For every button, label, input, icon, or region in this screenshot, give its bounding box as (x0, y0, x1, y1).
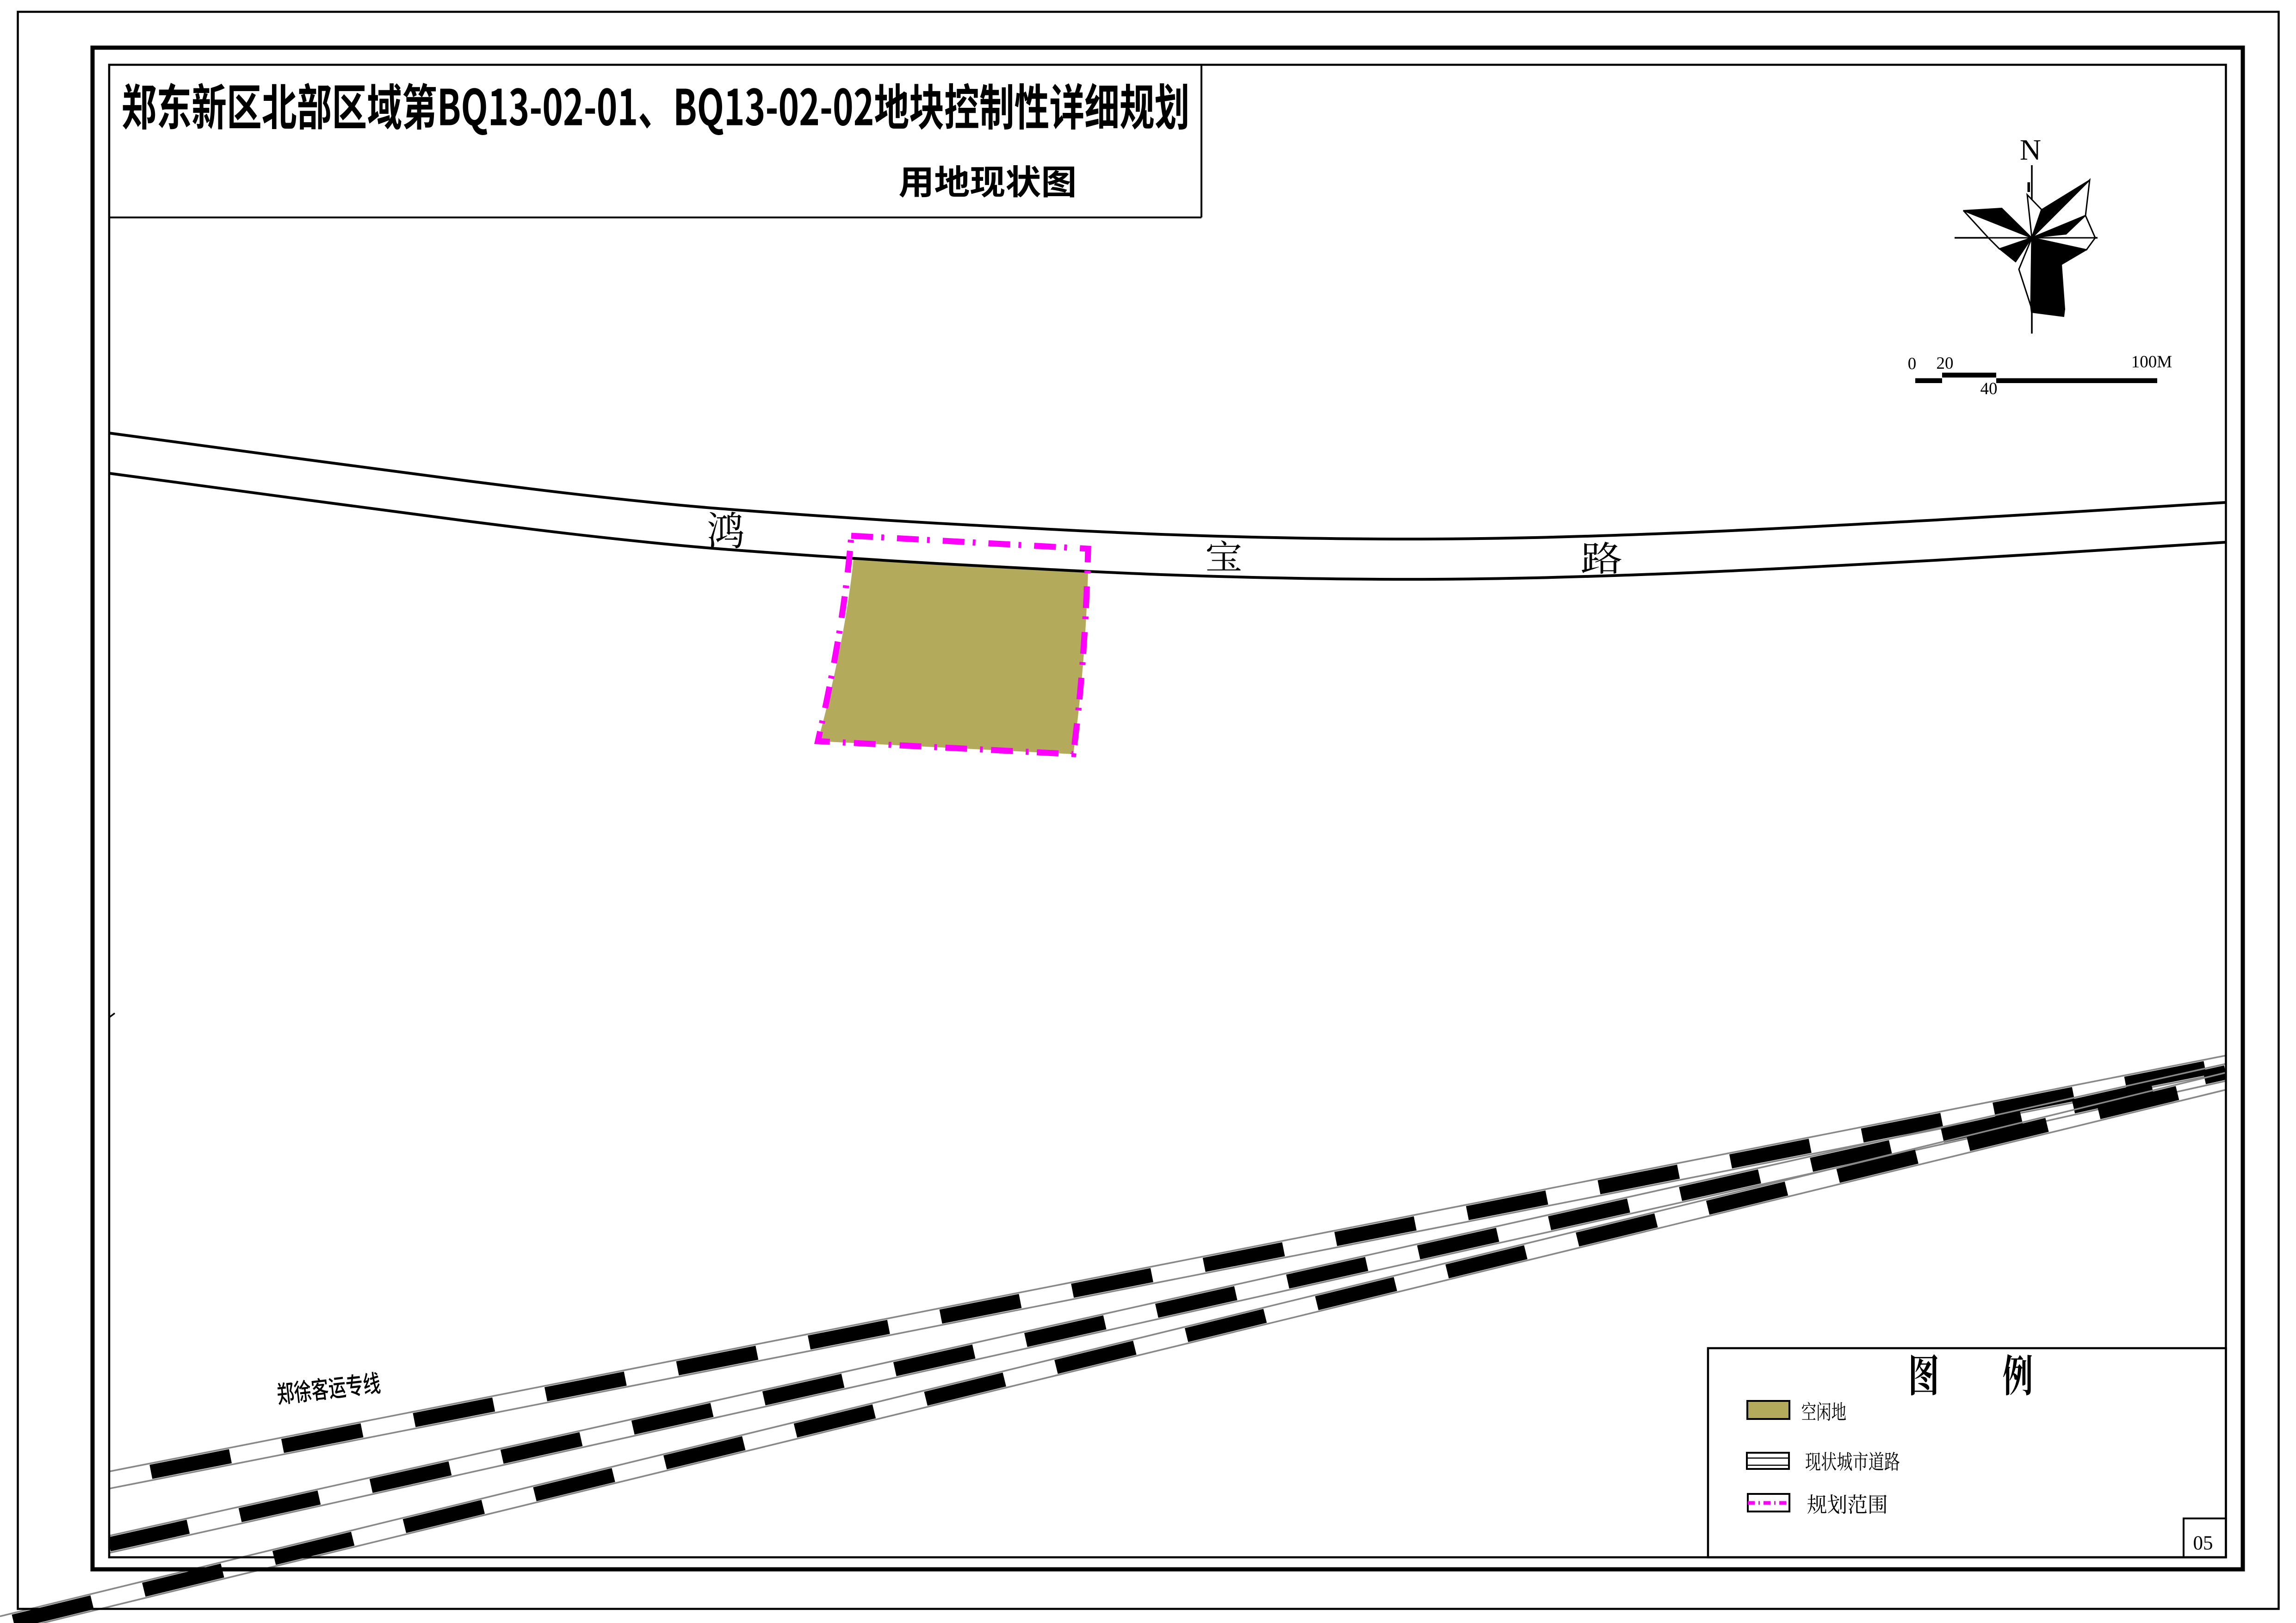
svg-text:0: 0 (1908, 354, 1917, 373)
svg-text:100M: 100M (2131, 353, 2172, 372)
svg-text:20: 20 (1937, 354, 1954, 373)
svg-text:N: N (2020, 133, 2041, 166)
svg-text:40: 40 (1980, 379, 1998, 398)
svg-text:05: 05 (2193, 1532, 2213, 1554)
